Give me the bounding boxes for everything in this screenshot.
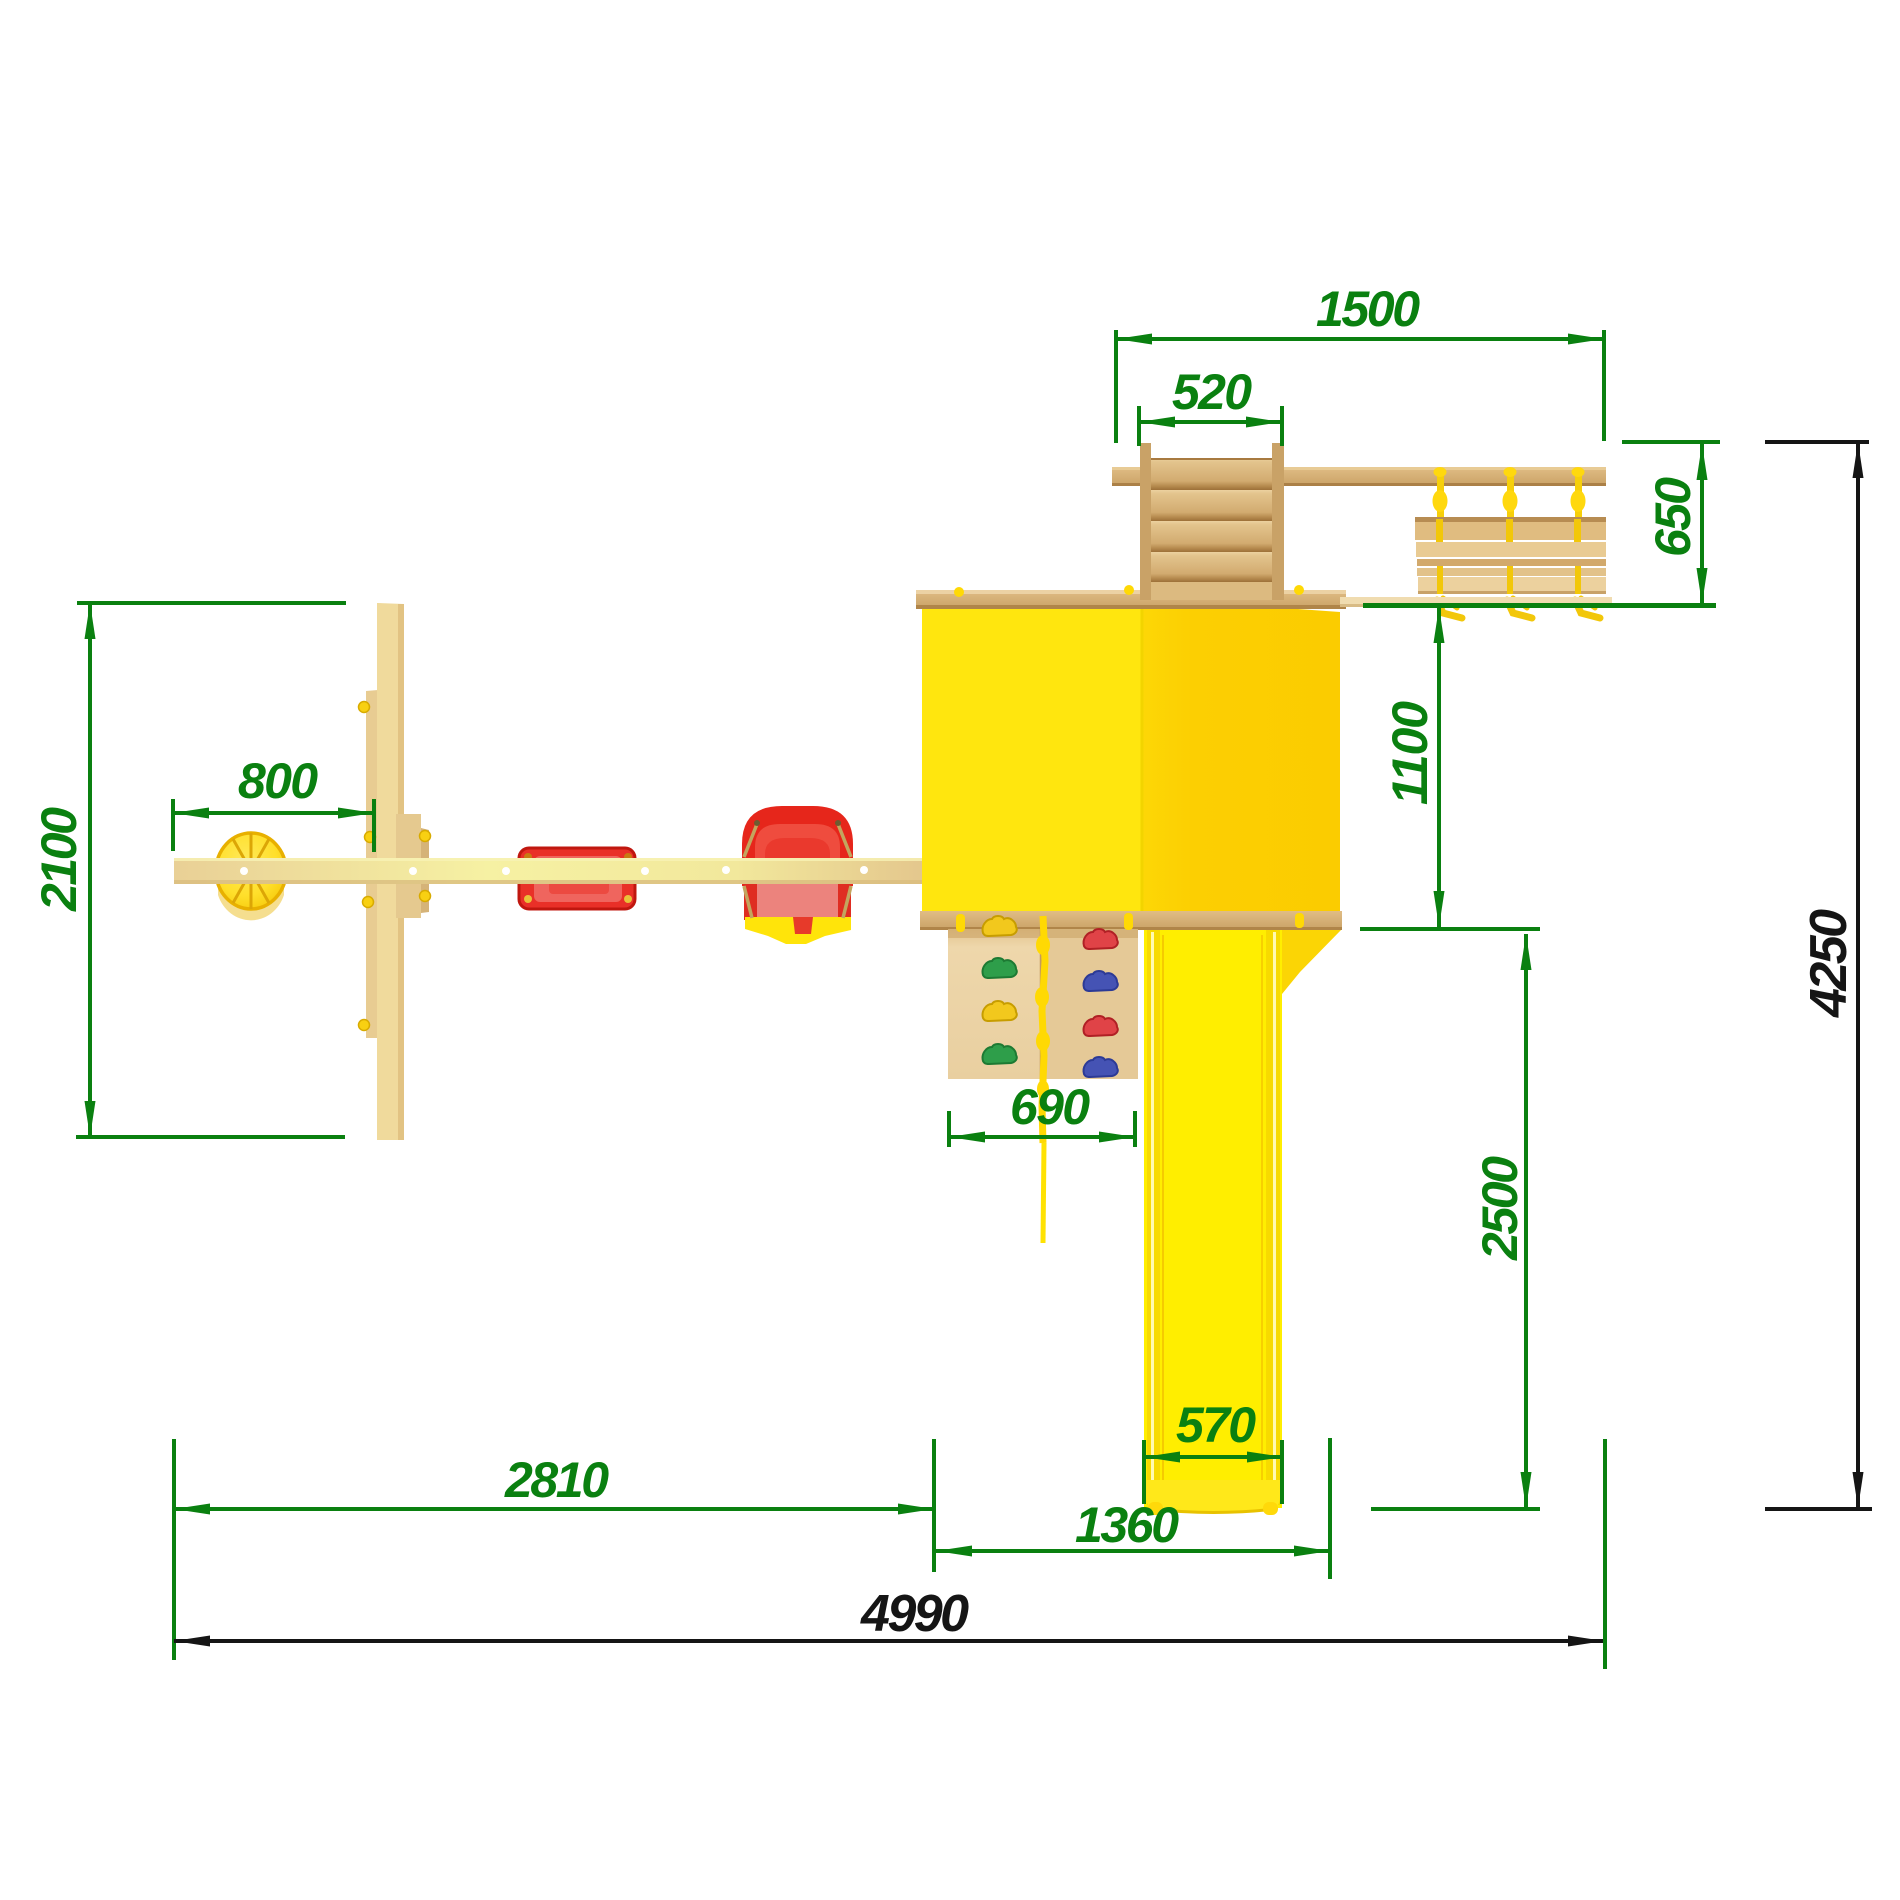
svg-text:650: 650 bbox=[1645, 477, 1701, 557]
svg-text:690: 690 bbox=[1010, 1079, 1090, 1135]
svg-text:2500: 2500 bbox=[1472, 1156, 1528, 1261]
svg-text:1100: 1100 bbox=[1382, 701, 1438, 805]
svg-text:1360: 1360 bbox=[1075, 1497, 1179, 1553]
svg-text:2100: 2100 bbox=[31, 807, 87, 912]
svg-text:4990: 4990 bbox=[860, 1585, 969, 1643]
svg-text:2810: 2810 bbox=[504, 1452, 609, 1508]
svg-text:520: 520 bbox=[1172, 364, 1252, 420]
svg-text:4250: 4250 bbox=[1800, 909, 1858, 1018]
svg-text:800: 800 bbox=[238, 753, 318, 809]
svg-text:1500: 1500 bbox=[1316, 281, 1420, 337]
svg-text:570: 570 bbox=[1176, 1397, 1256, 1453]
